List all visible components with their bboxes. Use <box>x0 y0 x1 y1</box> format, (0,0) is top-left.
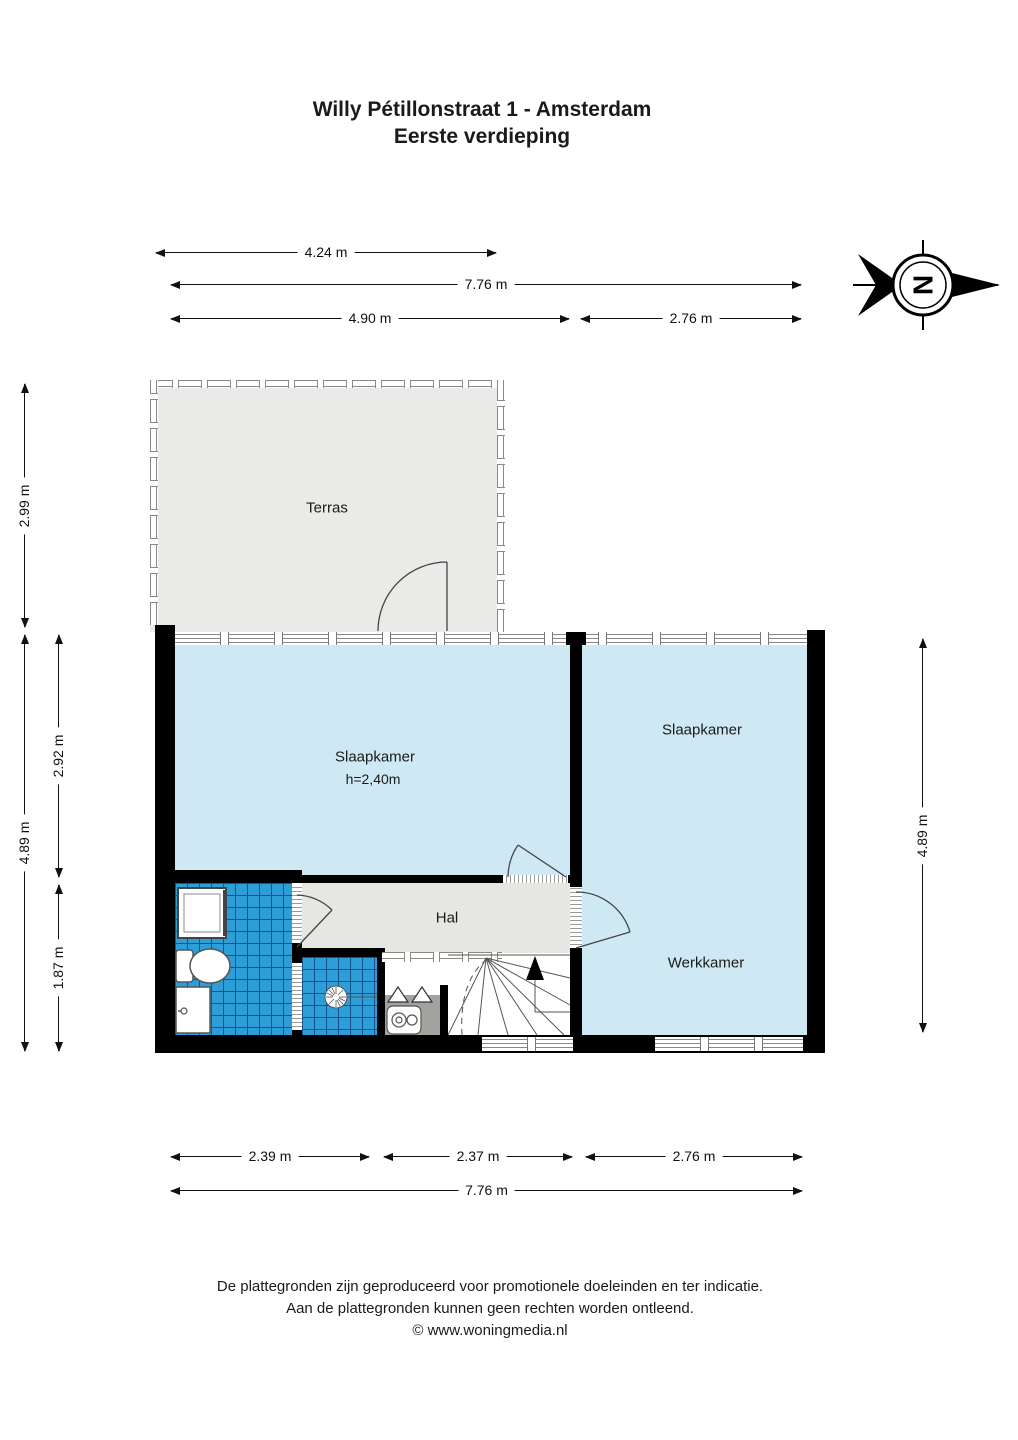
room-slaapkamer-werkkamer-right <box>582 645 807 1035</box>
label-slaapkamer-right: Slaapkamer <box>662 722 742 739</box>
wall-right <box>807 630 825 1053</box>
door-gap-badkamer-hal <box>292 885 302 943</box>
disclaimer-line1: De plattegronden zijn geproduceerd voor … <box>0 1276 980 1298</box>
compass-north-arrow <box>948 272 1000 298</box>
label-slaapkamer-left: Slaapkamer <box>335 749 415 766</box>
wall-left <box>155 625 175 1053</box>
disclaimer: De plattegronden zijn geproduceerd voor … <box>0 1276 980 1342</box>
door-gap-hal-werkkamer <box>570 887 582 948</box>
dim-top-total-width: 7.76 m <box>170 278 802 292</box>
label-slaapkamer-left-height: h=2,40m <box>346 771 401 787</box>
compass: N <box>853 240 1000 330</box>
label-hal: Hal <box>436 910 459 927</box>
stairs-up-arrow <box>526 956 544 980</box>
wall-divider-upper <box>570 632 582 887</box>
dim-left-total-depth: 4.89 m <box>18 634 32 1052</box>
door-gap-slaapkamer <box>503 875 568 883</box>
door-gap-badkamer-toilet <box>292 963 302 1030</box>
dim-top-right-width: 2.76 m <box>580 312 802 326</box>
stairs-balustrade <box>382 952 502 962</box>
dim-bathroom-depth: 1.87 m <box>52 884 66 1052</box>
compass-tail <box>858 254 902 316</box>
terras-railing-left <box>150 380 158 625</box>
dim-bottom-middle-width: 2.37 m <box>383 1150 573 1164</box>
dim-terras-depth: 2.99 m <box>18 383 32 628</box>
dim-bedroom-depth: 2.92 m <box>52 634 66 878</box>
wall-badkamer-top <box>175 870 302 883</box>
wall-divider-lower <box>570 948 582 1037</box>
copyright: © www.woningmedia.nl <box>0 1320 980 1342</box>
floorplan-page: Willy Pétillonstraat 1 - Amsterdam Eerst… <box>0 0 1018 1440</box>
wall-divider-top-cap <box>566 632 586 645</box>
page-title-line2: Eerste verdieping <box>0 123 964 150</box>
room-toilet <box>302 957 377 1035</box>
closet-floor <box>385 995 440 1035</box>
window-bottom-werkkamer <box>655 1037 803 1051</box>
wall-toilet-top <box>302 948 377 957</box>
label-terras: Terras <box>306 500 348 517</box>
dim-bottom-total-width: 7.76 m <box>170 1184 803 1198</box>
compass-north-letter: N <box>908 275 939 295</box>
window-band-top <box>175 632 807 645</box>
terras-railing-top <box>150 380 505 388</box>
room-badkamer <box>175 883 292 1035</box>
label-werkkamer: Werkkamer <box>668 955 744 972</box>
terras-railing-right <box>497 380 505 632</box>
wall-closet-right <box>440 985 448 1037</box>
dim-bottom-right-width: 2.76 m <box>585 1150 803 1164</box>
page-title: Willy Pétillonstraat 1 - Amsterdam Eerst… <box>0 96 964 150</box>
staircase <box>448 955 570 1035</box>
dim-bottom-left-width: 2.39 m <box>170 1150 370 1164</box>
dim-terras-width: 4.24 m <box>155 246 497 260</box>
dim-top-left-width: 4.90 m <box>170 312 570 326</box>
disclaimer-line2: Aan de plattegronden kunnen geen rechten… <box>0 1298 980 1320</box>
page-title-line1: Willy Pétillonstraat 1 - Amsterdam <box>0 96 964 123</box>
window-bottom-stairs <box>482 1037 573 1051</box>
dim-right-total-depth: 4.89 m <box>916 638 930 1033</box>
